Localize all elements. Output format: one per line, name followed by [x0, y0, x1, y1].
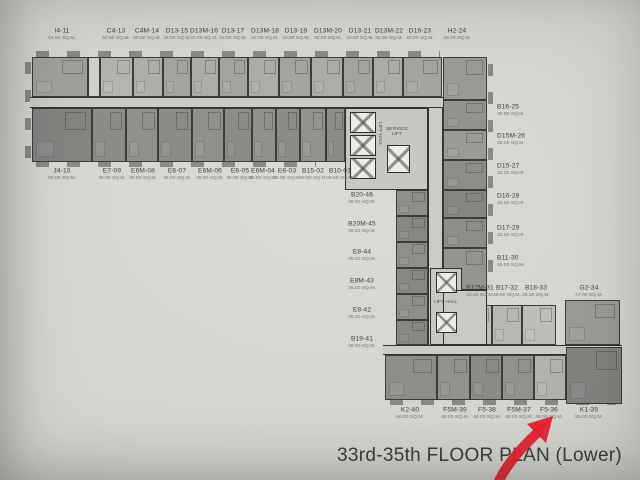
unit-label-D13-19: D13-1932.00 SQ.M. [282, 28, 310, 41]
unit-E7-09 [92, 108, 126, 162]
unit-label-D15M-26: D15M-2632.00 SQ.M. [497, 133, 525, 146]
unit-B20M-45 [396, 216, 428, 242]
unit-K1-35 [566, 347, 622, 404]
left-facade-balconies [25, 62, 31, 160]
unit-J4-10 [32, 108, 92, 162]
unit-label-B17M-31: B17M-3133.50 SQ.M. [466, 285, 494, 298]
unit-D13M-20 [311, 57, 343, 97]
unit-label-E6M-06: E6M-0635.50 SQ.M. [196, 168, 224, 181]
unit-label-D17-29: D17-2932.50 SQ.M. [497, 225, 525, 238]
lift-shaft-1 [350, 112, 376, 133]
unit-label-K1-35: K1-3555.00 SQ.M. [575, 407, 603, 420]
stair-core [88, 57, 100, 97]
unit-D15M-26 [443, 130, 487, 160]
unit-label-E6-03: E6-0335.00 SQ.M. [273, 168, 301, 181]
unit-label-F5M-39: F5M-3948.00 SQ.M. [441, 407, 469, 420]
unit-E8-44 [396, 242, 428, 268]
unit-label-B15-02: B15-0238.50 SQ.M. [299, 168, 327, 181]
unit-E6-07 [158, 108, 192, 162]
unit-E6-05 [224, 108, 252, 162]
unit-C4-13 [100, 57, 133, 97]
lift-shaft-2 [350, 135, 376, 156]
unit-label-D13M-18: D13M-1832.00 SQ.M. [251, 28, 279, 41]
unit-B20-46 [396, 190, 428, 216]
unit-label-B17-32: B17-3228.50 SQ.M. [493, 285, 521, 298]
unit-B18-33 [522, 305, 556, 345]
unit-B16-25 [443, 100, 487, 130]
service-lift-label: SERVICE LIFT [386, 126, 408, 136]
unit-label-D16-23: D16-2340.00 SQ.M. [406, 28, 434, 41]
unit-D17-29 [443, 218, 487, 248]
unit-D13M-18 [248, 57, 279, 97]
unit-E6M-04 [252, 108, 276, 162]
unit-C4M-14 [133, 57, 163, 97]
unit-label-F5-36: F5-3648.00 SQ.M. [535, 407, 563, 420]
unit-label-B18-33: B18-3328.50 SQ.M. [522, 285, 550, 298]
unit-label-H2-24: H2-2440.00 SQ.M. [443, 28, 471, 41]
unit-E6M-06 [192, 108, 224, 162]
main-corridor [30, 97, 443, 108]
unit-label-J4-10: J4-1055.00 SQ.M. [48, 168, 76, 181]
unit-label-B10-01: B10-0138.50 SQ.M. [326, 168, 354, 181]
lift-shaft-4 [436, 272, 457, 293]
unit-label-F5-38: F5-3848.00 SQ.M. [473, 407, 501, 420]
floor-plan: LIFT HALL SERVICE LIFT LIFT HALL I4-1154… [0, 0, 640, 480]
unit-label-I4-11: I4-1154.50 SQ.M. [48, 28, 76, 41]
unit-F5-38 [470, 355, 502, 400]
unit-D13M-22 [373, 57, 403, 97]
unit-label-D13M-20: D13M-2032.00 SQ.M. [314, 28, 342, 41]
unit-D15-27 [443, 160, 487, 190]
unit-label-G2-34: G2-3447.00 SQ.M. [575, 285, 603, 298]
unit-D13-21 [343, 57, 373, 97]
unit-label-F5M-37: F5M-3748.00 SQ.M. [505, 407, 533, 420]
unit-E8-42 [396, 294, 428, 320]
unit-B15-02 [300, 108, 326, 162]
unit-label-D15-27: D15-2732.00 SQ.M. [497, 163, 525, 176]
floor-plan-photo: LIFT HALL SERVICE LIFT LIFT HALL I4-1154… [0, 0, 640, 480]
unit-E8M-43 [396, 268, 428, 294]
unit-B17-32 [492, 305, 522, 345]
unit-D16-28 [443, 190, 487, 218]
unit-label-K2-40: K2-4056.00 SQ.M. [396, 407, 424, 420]
unit-F5M-37 [502, 355, 534, 400]
unit-F5M-39 [437, 355, 470, 400]
unit-I4-11 [32, 57, 88, 97]
unit-G2-34 [565, 300, 620, 345]
unit-B19-41 [396, 320, 428, 345]
unit-label-E6-07: E6-0735.00 SQ.M. [163, 168, 191, 181]
unit-label-E6M-08: E6M-0835.50 SQ.M. [129, 168, 157, 181]
unit-E6-03 [276, 108, 300, 162]
lift-shaft-5 [436, 312, 457, 333]
unit-label-B20M-45: B20M-4538.50 SQ.M. [348, 221, 376, 234]
unit-label-B19-41: B19-4138.50 SQ.M. [348, 336, 376, 349]
floor-plan-title: 33rd-35th FLOOR PLAN (Lower) [337, 445, 622, 467]
unit-label-E8M-43: E8M-4335.00 SQ.M. [348, 278, 376, 291]
right-facade-balconies [488, 64, 493, 284]
unit-label-E7-09: E7-0935.00 SQ.M. [98, 168, 126, 181]
unit-label-D13-15: D13-1532.00 SQ.M. [163, 28, 191, 41]
unit-B10-01 [326, 108, 345, 162]
unit-label-C4-13: C4-1350.50 SQ.M. [102, 28, 130, 41]
unit-label-D13-17: D13-1732.00 SQ.M. [219, 28, 247, 41]
mid-facade-balconies [36, 162, 316, 167]
unit-label-D16-28: D16-2832.50 SQ.M. [497, 193, 525, 206]
unit-label-D13M-22: D13M-2232.00 SQ.M. [375, 28, 403, 41]
unit-D13-17 [219, 57, 248, 97]
unit-D13-15 [163, 57, 191, 97]
lift-hall-label: LIFT HALL [378, 122, 383, 146]
unit-label-D13M-16: D13M-1632.00 SQ.M. [190, 28, 218, 41]
unit-label-B11-30: B11-3045.50 SQ.M. [497, 255, 525, 268]
unit-F5-36 [534, 355, 566, 400]
unit-K2-40 [385, 355, 437, 400]
unit-H2-24 [443, 57, 487, 100]
unit-D16-23 [403, 57, 442, 97]
unit-label-E8-44: E8-4435.00 SQ.M. [348, 249, 376, 262]
unit-label-B20-46: B20-4638.50 SQ.M. [348, 192, 376, 205]
unit-E6M-08 [126, 108, 158, 162]
unit-label-C4M-14: C4M-1450.50 SQ.M. [133, 28, 161, 41]
unit-label-E8-42: E8-4235.00 SQ.M. [348, 307, 376, 320]
unit-label-D13-21: D13-2132.00 SQ.M. [346, 28, 374, 41]
unit-label-B16-25: B16-2538.50 SQ.M. [497, 104, 525, 117]
unit-D13-19 [279, 57, 311, 97]
unit-D13M-16 [191, 57, 219, 97]
service-lift-shaft [387, 145, 410, 173]
lift-hall-2-label: LIFT HALL [434, 299, 458, 304]
